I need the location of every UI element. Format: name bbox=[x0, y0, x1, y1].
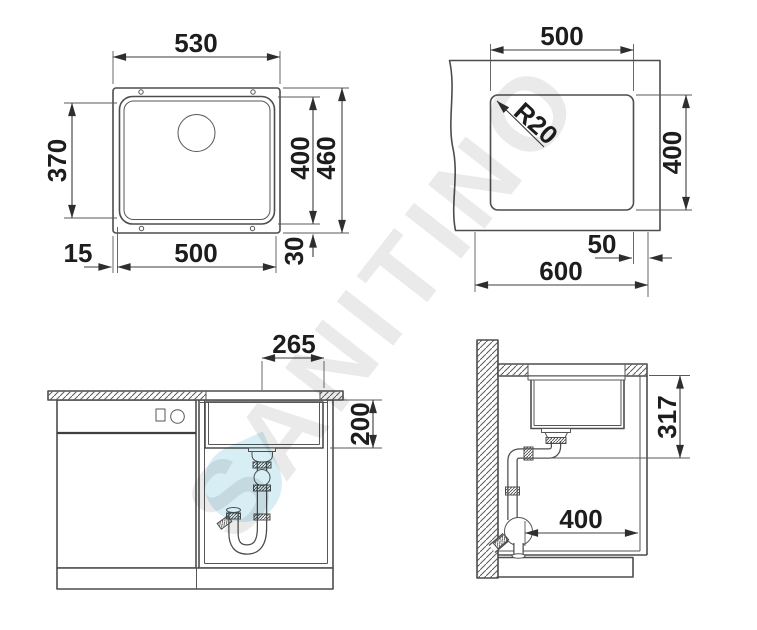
plinth bbox=[57, 568, 333, 589]
drawing-canvas: 530 370 400 460 30 500 bbox=[0, 0, 757, 630]
dim-530-label: 530 bbox=[174, 28, 217, 58]
dim-265-label: 265 bbox=[272, 329, 315, 359]
dim-460-label: 460 bbox=[311, 136, 341, 179]
bowl-front-section bbox=[205, 402, 323, 448]
dim-500-bottom: 500 bbox=[113, 227, 276, 273]
dim-200-label: 200 bbox=[345, 402, 375, 445]
sink-flange-outline bbox=[113, 88, 280, 233]
dim-265: 265 bbox=[262, 329, 324, 390]
dim-600-label: 600 bbox=[539, 256, 582, 286]
dim-200: 200 bbox=[330, 400, 382, 448]
plinth-side bbox=[498, 558, 633, 578]
view-sink-top: 530 370 400 460 30 500 bbox=[42, 28, 349, 273]
dim-50-label: 50 bbox=[588, 229, 617, 259]
dim-30-label: 30 bbox=[279, 237, 309, 266]
dim-370-label: 370 bbox=[42, 139, 72, 182]
flange-side bbox=[528, 376, 625, 380]
dim-30: 30 bbox=[279, 235, 313, 266]
dim-side-400: 400 bbox=[525, 504, 638, 546]
strainer-flange bbox=[249, 448, 276, 452]
siphon-ball-joint bbox=[254, 470, 270, 486]
technical-drawing-page: 530 370 400 460 30 500 bbox=[0, 0, 757, 630]
dim-edge-50: 50 bbox=[588, 229, 672, 297]
view-front: 265 200 bbox=[48, 329, 382, 589]
bowl-side-section bbox=[531, 380, 624, 429]
countertop-outline bbox=[450, 61, 661, 231]
trap-bend bbox=[505, 518, 533, 546]
dim-cutout-400-label: 400 bbox=[657, 131, 687, 174]
dim-15-label: 15 bbox=[64, 238, 93, 268]
dim-side-400-label: 400 bbox=[559, 504, 602, 534]
dim-370: 370 bbox=[42, 103, 117, 218]
dishwasher-cabinet bbox=[57, 400, 196, 568]
dim-cutout-500-label: 500 bbox=[540, 21, 583, 51]
view-cutout: 500 R20 400 50 600 bbox=[450, 21, 693, 297]
dim-15: 15 bbox=[64, 238, 112, 268]
strainer-flange-side bbox=[542, 429, 571, 433]
dim-530: 530 bbox=[113, 28, 280, 84]
siphon-side bbox=[492, 429, 571, 559]
view-side: 317 400 bbox=[477, 340, 690, 578]
strainer-cup bbox=[252, 452, 273, 463]
dim-317-label: 317 bbox=[652, 395, 682, 438]
dim-total-600: 600 bbox=[475, 232, 648, 292]
dim-500-label: 500 bbox=[174, 238, 217, 268]
